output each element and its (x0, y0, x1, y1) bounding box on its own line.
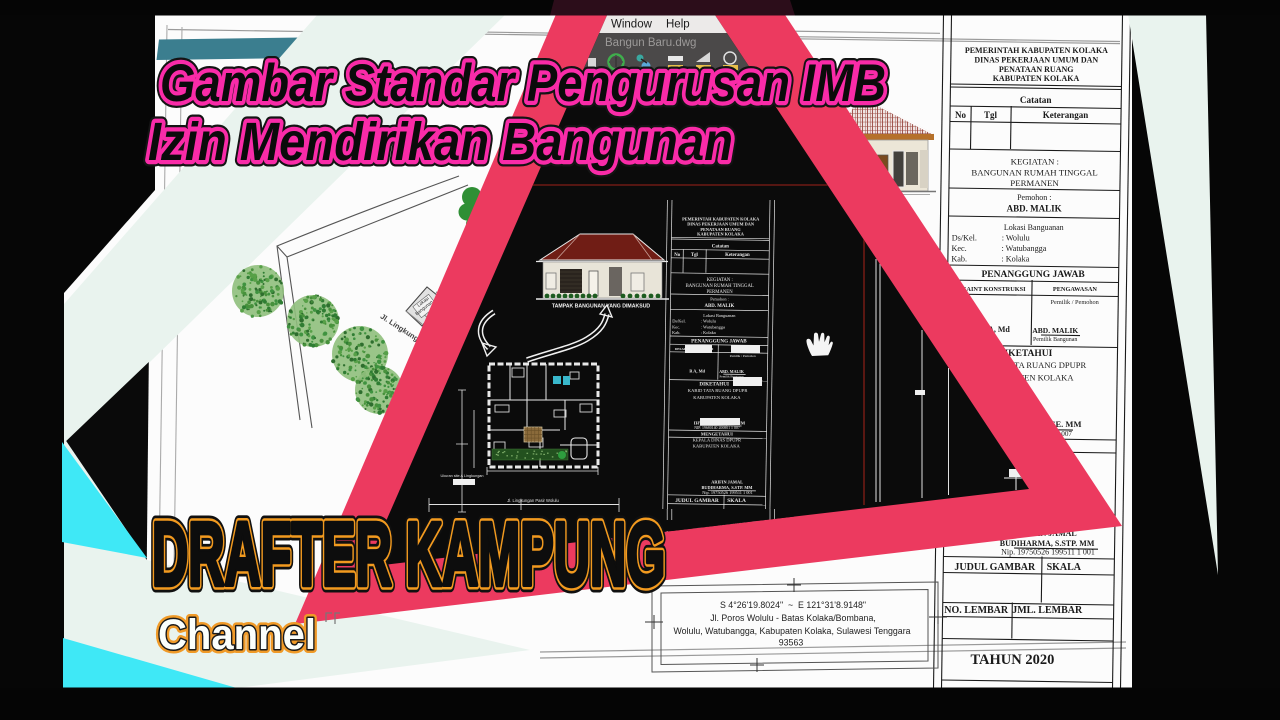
svg-text:SKALA: SKALA (1047, 562, 1082, 573)
svg-text:: Watubangga: : Watubangga (1002, 244, 1047, 253)
svg-text:PERMANEN: PERMANEN (707, 290, 734, 295)
svg-text:Kec.: Kec. (672, 324, 680, 329)
svg-text:S 4°26'19.8024" ~ E 121°31'8: S 4°26'19.8024" ~ E 121°31'8.9148" (720, 600, 866, 610)
svg-text:Ds/Kel.: Ds/Kel. (952, 234, 977, 243)
svg-text:Lokasi Banguanan: Lokasi Banguanan (703, 313, 736, 318)
svg-text:ABD. MALIK: ABD. MALIK (705, 304, 735, 309)
svg-text:PENATAAN RUANG: PENATAAN RUANG (999, 65, 1074, 74)
svg-text:Keterangan: Keterangan (725, 253, 750, 258)
svg-text:KABID TATA RUANG DPUPR: KABID TATA RUANG DPUPR (688, 388, 749, 393)
svg-text:KABUPATEN KOLAKA: KABUPATEN KOLAKA (697, 232, 745, 237)
svg-text:KABUPATEN KOLAKA: KABUPATEN KOLAKA (693, 444, 741, 449)
svg-text:KEGIATAN :: KEGIATAN : (1011, 157, 1059, 167)
svg-text:: Watubangga: : Watubangga (701, 324, 725, 329)
svg-text:Catatan: Catatan (1020, 95, 1052, 105)
svg-text:Help: Help (666, 19, 690, 31)
svg-text:ABD. MALIK: ABD. MALIK (719, 369, 745, 374)
svg-text:Wolulu, Watubangga, Kabupaten: Wolulu, Watubangga, Kabupaten Kolaka, Su… (673, 626, 910, 636)
svg-text:BANGUNAN RUMAH TINGGAL: BANGUNAN RUMAH TINGGAL (971, 168, 1097, 178)
svg-text:: Kolaka: : Kolaka (701, 330, 716, 335)
svg-text:ARIFIN JAMAL: ARIFIN JAMAL (711, 480, 743, 485)
svg-text:Ukuran site A Lingkungan: Ukuran site A Lingkungan (440, 474, 483, 478)
svg-text:Catatan: Catatan (712, 245, 729, 250)
svg-text:KABUPATEN KOLAKA: KABUPATEN KOLAKA (993, 74, 1080, 83)
svg-text:Window: Window (611, 19, 653, 31)
svg-text:BANGUNAN RUMAH TINGGAL: BANGUNAN RUMAH TINGGAL (686, 284, 754, 289)
svg-text:JUDUL GAMBAR: JUDUL GAMBAR (954, 562, 1036, 573)
svg-text:JUDUL GAMBAR: JUDUL GAMBAR (675, 498, 719, 504)
svg-text:Izin Mendirikan Bangunan: Izin Mendirikan Bangunan (148, 112, 733, 172)
svg-text:Pemilik / Pemohon: Pemilik / Pemohon (1051, 299, 1100, 306)
svg-text:Pemilik / Pemohon: Pemilik / Pemohon (730, 354, 756, 358)
svg-text:R A, Md: R A, Md (689, 369, 705, 374)
svg-text:Kab.: Kab. (951, 255, 967, 264)
svg-text:No: No (674, 253, 681, 258)
svg-text:PENGAWASAN: PENGAWASAN (1053, 286, 1098, 293)
svg-text:DRAFTER KAMPUNG: DRAFTER KAMPUNG (152, 503, 665, 605)
svg-text:Tgl: Tgl (984, 110, 998, 120)
svg-text:ABD. MALIK: ABD. MALIK (1032, 326, 1078, 335)
svg-text:SKALA: SKALA (727, 498, 746, 504)
svg-text:Keterangan: Keterangan (1043, 110, 1089, 120)
svg-text:No: No (955, 110, 966, 120)
svg-text:Pemohon :: Pemohon : (710, 297, 729, 302)
svg-text:Pemilik Bangunan: Pemilik Bangunan (1033, 337, 1078, 343)
svg-text:Gambar Standar Pengurusan IMB: Gambar Standar Pengurusan IMB (160, 54, 886, 113)
svg-text:: Wolulu: : Wolulu (701, 319, 717, 324)
svg-text:: Kolaka: : Kolaka (1001, 255, 1029, 264)
svg-text:PEMERINTAH KABUPATEN KOLAKA: PEMERINTAH KABUPATEN KOLAKA (965, 46, 1108, 55)
svg-text:Kab.: Kab. (672, 330, 680, 335)
svg-text:Tgl: Tgl (691, 253, 699, 258)
svg-text:Bangun Baru.dwg: Bangun Baru.dwg (605, 37, 696, 49)
svg-text:MENGETAHUI: MENGETAHUI (701, 432, 733, 437)
svg-text:PERMANEN: PERMANEN (1010, 178, 1059, 188)
svg-text:NO. LEMBAR: NO. LEMBAR (944, 605, 1009, 616)
svg-text:KABUPATEN KOLAKA: KABUPATEN KOLAKA (693, 395, 741, 400)
svg-text:Kec.: Kec. (952, 244, 967, 253)
svg-text:Ds/Kel.: Ds/Kel. (672, 319, 686, 324)
svg-text:KEPALA DINAS DPUPR: KEPALA DINAS DPUPR (693, 438, 742, 443)
svg-text:Channel: Channel (158, 611, 316, 659)
svg-text:PENANGGUNG JAWAB: PENANGGUNG JAWAB (982, 270, 1086, 280)
svg-text:NIP. 19680140 200801 1 007: NIP. 19680140 200801 1 007 (694, 426, 740, 430)
svg-text:ABD. MALIK: ABD. MALIK (1007, 204, 1062, 214)
svg-text:KEGIATAN :: KEGIATAN : (707, 278, 733, 283)
svg-text:DIKETAHUI: DIKETAHUI (699, 382, 729, 388)
svg-text:TAMPAK BANGUNAN YANG DIMAKSUD: TAMPAK BANGUNAN YANG DIMAKSUD (552, 304, 651, 310)
svg-text:DINAS PEKERJAAN UMUM DAN: DINAS PEKERJAAN UMUM DAN (974, 56, 1098, 65)
svg-text:TAHUN 2020: TAHUN 2020 (970, 652, 1054, 668)
svg-text:Pemohon :: Pemohon : (1017, 193, 1051, 202)
svg-text:PENANGGUNG JAWAB: PENANGGUNG JAWAB (691, 339, 747, 345)
svg-text:93563: 93563 (779, 638, 804, 648)
svg-text:: Wolulu: : Wolulu (1002, 234, 1030, 243)
svg-text:Lokasi Banguanan: Lokasi Banguanan (1004, 223, 1064, 232)
svg-text:Jl. Poros Wolulu - Batas Kolak: Jl. Poros Wolulu - Batas Kolaka/Bombana, (710, 613, 876, 623)
svg-text:JML. LEMBAR: JML. LEMBAR (1012, 605, 1083, 616)
